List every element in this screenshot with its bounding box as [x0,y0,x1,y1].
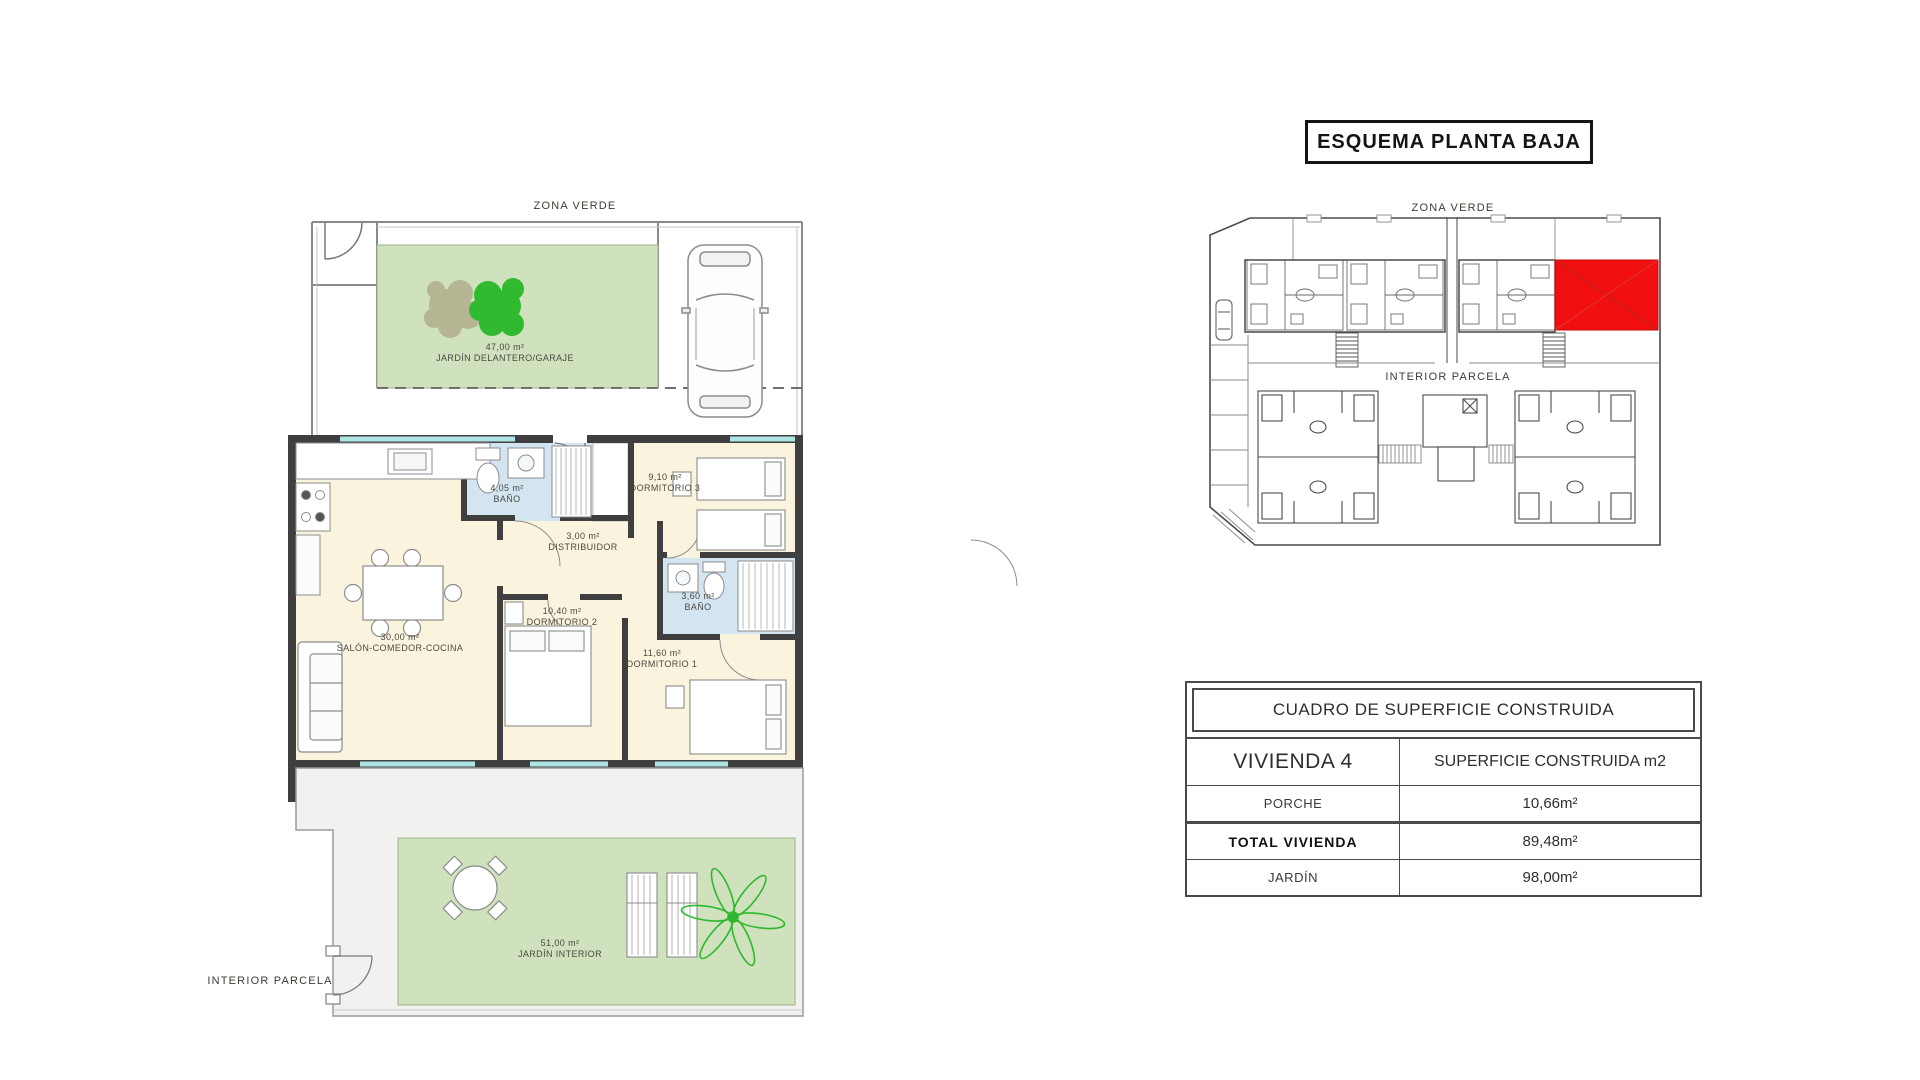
stairs-icon [1336,333,1358,367]
site-zona-verde-label: ZONA VERDE [1412,202,1495,214]
interior-garden-area: 51,00 m² [541,938,580,948]
dorm1-name: DORMITORIO 1 [627,659,698,669]
row-label: JARDÍN [1187,860,1399,895]
site-schematic: ZONA VERDE [1195,195,1685,565]
bano1-area: 4,05 m² [490,483,523,493]
bano1-name: BAÑO [493,494,520,504]
table-row-porche: PORCHE 10,66m² [1187,786,1700,824]
bano2-area: 3,60 m² [681,591,714,601]
bano2-name: BAÑO [684,602,711,612]
row-label: TOTAL VIVIENDA [1187,824,1399,859]
dorm3-name: DORMITORIO 3 [630,483,701,493]
zona-verde-label: ZONA VERDE [534,200,617,212]
floor-plan: ZONA VERDE 47 [260,190,840,1040]
unit-column-header: VIVIENDA 4 [1187,739,1399,785]
stairs-icon [1543,333,1565,367]
dorm1-area: 11,60 m² [643,648,681,658]
row-value: 89,48m² [1399,824,1700,859]
garden-table-icon [443,856,507,920]
sheet-title: ESQUEMA PLANTA BAJA [1305,120,1593,164]
salon-area: 30,00 m² [381,632,420,642]
car-icon [682,245,768,417]
sofa-icon [298,642,342,752]
table-header-row: VIVIENDA 4 SUPERFICIE CONSTRUIDA m2 [1187,739,1700,786]
front-garden-area: 47,00 m² [486,342,525,352]
entry-gate-icon [325,222,362,259]
architectural-sheet: ZONA VERDE 47 [0,0,1920,1080]
table-row-jardin: JARDÍN 98,00m² [1187,860,1700,895]
surface-table-title: CUADRO DE SUPERFICIE CONSTRUIDA [1192,688,1695,732]
site-interior-parcela-label: INTERIOR PARCELA [1385,371,1510,383]
row-label: PORCHE [1187,786,1399,821]
table-row-total: TOTAL VIVIENDA 89,48m² [1187,824,1700,860]
site-car-icon [1216,300,1232,340]
wardrobe-niche [593,443,628,521]
interior-parcela-label: INTERIOR PARCELA [207,975,332,987]
surface-column-header: SUPERFICIE CONSTRUIDA m2 [1399,739,1700,785]
distribuidor-area: 3,00 m² [566,531,599,541]
sheet-title-text: ESQUEMA PLANTA BAJA [1317,131,1581,154]
interior-garden-name: JARDÍN INTERIOR [518,949,602,959]
surface-table-grid: VIVIENDA 4 SUPERFICIE CONSTRUIDA m2 PORC… [1187,737,1700,895]
dorm2-name: DORMITORIO 2 [527,617,598,627]
distribuidor-name: DISTRIBUIDOR [548,542,617,552]
row-value: 10,66m² [1399,786,1700,821]
front-garden-name: JARDÍN DELANTERO/GARAJE [436,353,574,363]
highlighted-unit [1555,260,1658,330]
surface-table-title-text: CUADRO DE SUPERFICIE CONSTRUIDA [1273,700,1614,720]
dorm3-area: 9,10 m² [648,472,681,482]
surface-table: CUADRO DE SUPERFICIE CONSTRUIDA VIVIENDA… [1185,681,1702,897]
salon-name: SALÓN-COMEDOR-COCINA [337,643,464,653]
dorm2-area: 10,40 m² [543,606,582,616]
row-value: 98,00m² [1399,860,1700,895]
